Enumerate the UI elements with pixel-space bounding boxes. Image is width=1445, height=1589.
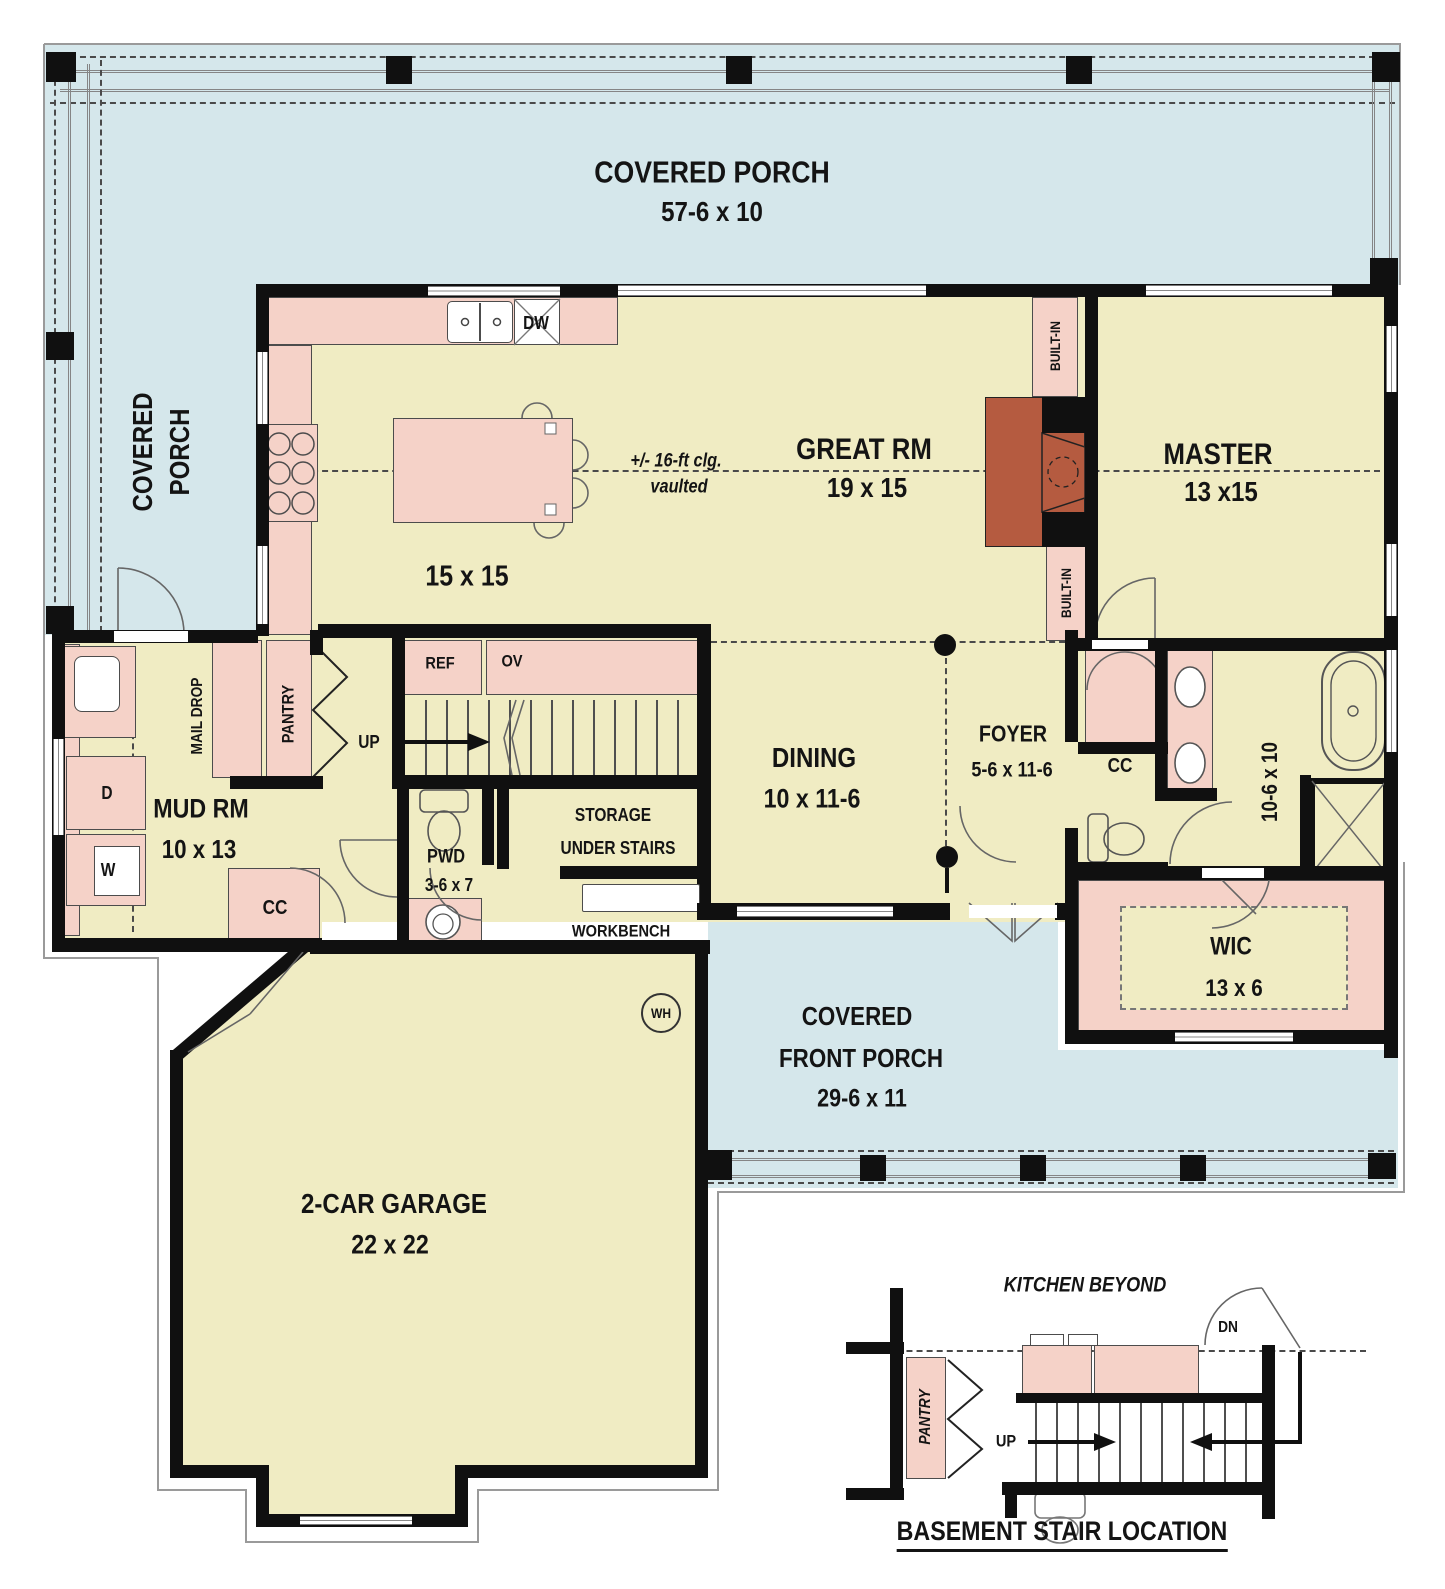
foyer-dims: 5-6 x 11-6 (971, 760, 1052, 781)
fireplace-surround (1042, 397, 1085, 433)
porch-post (1020, 1155, 1046, 1181)
wic-west-wall (1065, 866, 1078, 1044)
garage-east-wall (695, 940, 708, 1478)
great-master-wall (1085, 284, 1098, 644)
wic-dims: 13 x 6 (1205, 977, 1262, 1001)
porch-top-dims: 57-6 x 10 (661, 198, 763, 226)
garage-north-wall (310, 940, 710, 954)
mud-south-wall (52, 938, 322, 952)
master-door-opening (1092, 640, 1148, 649)
kitchen-west-window (257, 352, 268, 424)
ceiling-note-line1: +/- 16-ft clg. (630, 452, 721, 471)
foyer-closet-label: CC (1108, 756, 1133, 776)
garage-label: 2-CAR GARAGE (301, 1190, 487, 1218)
porch-post (726, 56, 752, 84)
built-in-lower-label: BUILT-IN (1059, 568, 1073, 618)
stair-south-wall (392, 775, 711, 789)
built-in-upper-label: BUILT-IN (1048, 321, 1062, 371)
mail-drop-label: MAIL DROP (190, 678, 206, 755)
porch-post (46, 606, 74, 634)
kitchen-west-window (257, 546, 268, 624)
storage-label-line2: UNDER STAIRS (561, 839, 676, 857)
pantry-label: PANTRY (280, 685, 297, 743)
washer-label: W (101, 861, 116, 879)
porch-post (860, 1155, 886, 1181)
inset-caption: BASEMENT STAIR LOCATION (897, 1518, 1228, 1552)
refrigerator-label: REF (425, 655, 454, 672)
master-east-window (1386, 544, 1397, 616)
bath-east-window (1386, 650, 1397, 752)
workbench-counter (582, 884, 700, 912)
porch-door-opening (114, 631, 188, 642)
porch-post (46, 52, 76, 82)
garage-door (300, 1516, 412, 1525)
foyer-label: FOYER (979, 723, 1047, 746)
storage-label-line1: STORAGE (575, 806, 651, 824)
great-room-label: GREAT RM (796, 435, 932, 465)
storage-south-wall (560, 866, 711, 879)
front-porch-label-line2: FRONT PORCH (779, 1045, 943, 1071)
wic-door-opening (1202, 868, 1264, 878)
bath-dims: 10-6 x 10 (1259, 742, 1281, 822)
porch-post (702, 1150, 732, 1180)
vanity-wall (1155, 650, 1167, 795)
powder-west-wall (397, 789, 409, 952)
great-room-sliding-door (618, 285, 926, 296)
porch-left-label-line1: COVERED (129, 392, 157, 511)
garage-west-wall (170, 1050, 183, 1475)
porch-post (46, 332, 74, 360)
wic-label: WIC (1210, 935, 1252, 960)
vanity-south-wall (1155, 788, 1217, 801)
kitchen-south-wall (318, 624, 711, 638)
storage-west-wall (497, 789, 509, 869)
garage-south-wall-left (170, 1465, 268, 1478)
inset-wall (1005, 1482, 1017, 1518)
water-heater-label: WH (651, 1006, 671, 1020)
dryer-label: D (101, 784, 112, 802)
fireplace-surround (1042, 512, 1085, 547)
stairs-up-label: UP (358, 733, 380, 751)
inset-wall (1002, 1482, 1275, 1495)
porch-top-label: COVERED PORCH (594, 157, 830, 188)
inset-pantry-label: PANTRY (918, 1389, 934, 1444)
inset-down-label: DN (1218, 1320, 1238, 1336)
mud-room-label: MUD RM (153, 796, 248, 823)
master-sliding-door (1146, 285, 1332, 296)
kitchen-window (428, 286, 560, 296)
workbench-label: WORKBENCH (572, 923, 670, 940)
inset-up-label: UP (996, 1433, 1016, 1450)
pantry-south-wall (230, 776, 323, 789)
foyer-east-wall (1065, 630, 1078, 742)
inset-wall (846, 1488, 904, 1500)
front-porch-dims: 29-6 x 11 (817, 1087, 907, 1112)
oven-label: OV (501, 653, 522, 670)
dining-label: DINING (772, 744, 856, 772)
porch-left-label-line2: PORCH (166, 409, 194, 496)
stair-west-wall (392, 638, 405, 789)
porch-post (1066, 56, 1092, 84)
powder-east-wall (482, 789, 494, 865)
porch-post (1368, 1153, 1396, 1179)
porch-post (1180, 1155, 1206, 1181)
porch-post (1370, 258, 1398, 286)
kitchen-dims: 15 x 15 (425, 563, 508, 592)
shower-wall (1300, 775, 1311, 875)
front-door-opening (969, 905, 1057, 918)
inset-wall (846, 1342, 904, 1354)
pantry-wall-stub (310, 630, 323, 655)
floor-plan: COVERED PORCH 57-6 x 10 COVERED PORCH 15… (0, 0, 1445, 1589)
garage-dims: 22 x 22 (351, 1232, 428, 1259)
master-east-window (1386, 326, 1397, 392)
inset-heading: KITCHEN BEYOND (1004, 1275, 1167, 1296)
garage-south-wall-right (455, 1465, 708, 1478)
mud-room-dims: 10 x 13 (162, 836, 237, 862)
front-porch-label-line1: COVERED (802, 1003, 913, 1029)
dining-window (737, 906, 893, 917)
inset-wall (890, 1288, 903, 1500)
great-room-dims: 19 x 15 (827, 474, 907, 502)
master-dims: 13 x15 (1184, 478, 1258, 506)
porch-post (386, 56, 412, 84)
dishwasher-label: DW (523, 314, 549, 332)
master-label: MASTER (1164, 440, 1273, 470)
porch-post (1372, 52, 1400, 82)
inset-counter-base (1016, 1393, 1266, 1403)
ceiling-note-line2: vaulted (650, 478, 707, 497)
mud-closet-label: CC (263, 898, 288, 918)
dining-dims: 10 x 11-6 (764, 786, 861, 813)
mud-window (53, 739, 64, 835)
powder-label: PWD (427, 848, 465, 867)
powder-dims: 3-6 x 7 (425, 876, 473, 894)
wic-window (1175, 1032, 1293, 1042)
